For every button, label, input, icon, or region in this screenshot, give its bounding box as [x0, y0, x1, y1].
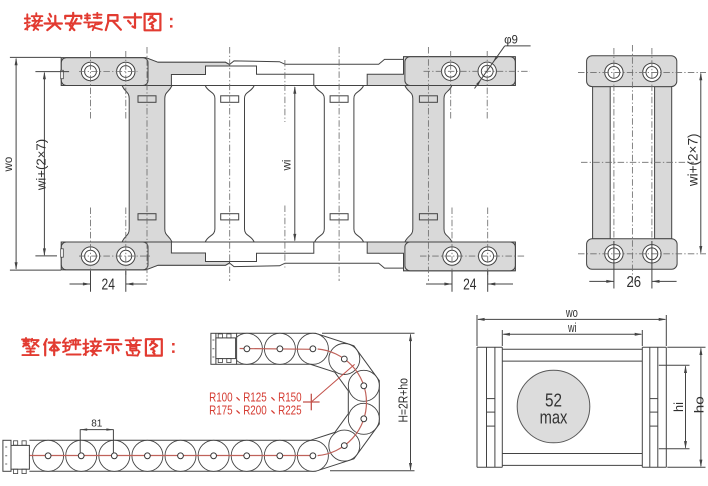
- svg-text:ho: ho: [691, 396, 706, 413]
- svg-text:wi+(2×7): wi+(2×7): [685, 134, 700, 188]
- svg-text:26: 26: [627, 274, 642, 291]
- svg-text:wo: wo: [565, 305, 578, 320]
- svg-text:24: 24: [463, 277, 476, 294]
- svg-text:wi: wi: [567, 320, 576, 335]
- svg-text:H=2R+ho: H=2R+ho: [396, 378, 410, 423]
- svg-text:81: 81: [91, 418, 103, 429]
- svg-text:R175R200R225: R175R200R225: [209, 402, 302, 417]
- svg-text:24: 24: [102, 277, 115, 294]
- svg-text:max: max: [540, 407, 568, 427]
- svg-text:wo: wo: [3, 157, 15, 173]
- svg-text:hi: hi: [671, 402, 686, 412]
- svg-text:φ9: φ9: [504, 35, 518, 47]
- svg-text:wi+(2×7): wi+(2×7): [33, 139, 48, 191]
- svg-text:wi: wi: [279, 160, 293, 172]
